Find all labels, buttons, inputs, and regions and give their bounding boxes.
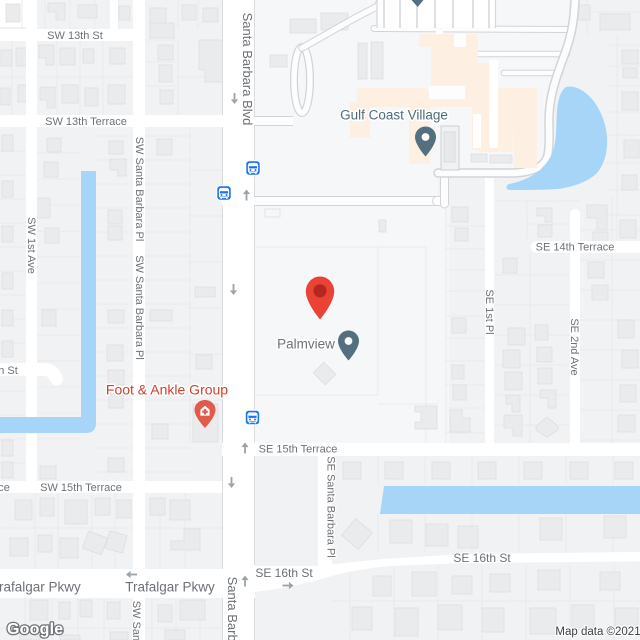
svg-text:SW 15th Terrace: SW 15th Terrace (40, 482, 122, 494)
svg-text:h St: h St (0, 365, 18, 377)
svg-text:Map data ©2021: Map data ©2021 (555, 626, 640, 638)
svg-text:SE 16th St: SE 16th St (453, 551, 511, 565)
svg-text:SE 1st Pl: SE 1st Pl (483, 289, 495, 334)
svg-text:Trafalgar Pkwy: Trafalgar Pkwy (0, 580, 81, 595)
svg-text:SW Santa Barbara Pl: SW Santa Barbara Pl (130, 601, 142, 640)
svg-text:SW 1st Ave: SW 1st Ave (25, 217, 37, 274)
svg-text:SW 13th Terrace: SW 13th Terrace (45, 116, 127, 128)
svg-text:SE 2nd Ave: SE 2nd Ave (568, 318, 580, 375)
svg-text:SE 16th St: SE 16th St (255, 566, 313, 580)
svg-text:Google: Google (7, 621, 63, 638)
svg-text:Foot & Ankle Group: Foot & Ankle Group (106, 382, 228, 398)
svg-text:Santa Barbara Blvd: Santa Barbara Blvd (225, 577, 240, 640)
svg-text:Gulf Coast Village: Gulf Coast Village (340, 108, 448, 123)
svg-text:SW 15th Terrace: SW 15th Terrace (0, 482, 10, 494)
svg-text:SE 14th Terrace: SE 14th Terrace (536, 242, 615, 254)
svg-text:Santa Barbara Blvd: Santa Barbara Blvd (240, 13, 255, 126)
svg-text:SW Santa Barbara Pl: SW Santa Barbara Pl (133, 137, 145, 242)
svg-text:SW Santa Barbara Pl: SW Santa Barbara Pl (133, 255, 145, 360)
svg-text:SE 15th Terrace: SE 15th Terrace (259, 444, 338, 456)
svg-text:Palmview: Palmview (277, 337, 335, 352)
svg-text:Trafalgar Pkwy: Trafalgar Pkwy (125, 580, 215, 595)
svg-text:SE Santa Barbara Pl: SE Santa Barbara Pl (325, 456, 337, 558)
svg-text:SW 13th St: SW 13th St (47, 30, 103, 42)
